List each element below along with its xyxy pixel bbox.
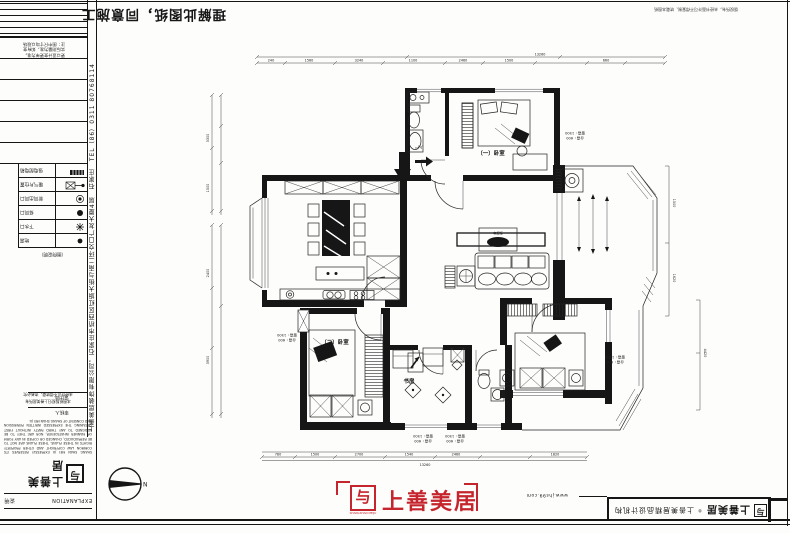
legend-label: 地漏: [20, 237, 29, 243]
window-annotation: 台高：600 窗高：1500: [412, 434, 433, 444]
master-furniture: [500, 333, 585, 390]
brand-glyph-icon: 与: [350, 485, 376, 511]
svg-text:台高：600: 台高：600: [413, 439, 431, 444]
brand-glyph-icon: 与: [754, 504, 767, 517]
rev-line: [0, 9, 88, 10]
drawing-sheet: 理解此图纸，同意施工 版权所有，未经书面许可不得复制、转载本图纸 更以设计变更单…: [0, 0, 790, 533]
dim: 2700: [355, 453, 364, 457]
expl-line-top: [4, 493, 92, 494]
rev-line: [0, 3, 88, 4]
legend-label: 新风出风口: [20, 195, 43, 201]
kitchen-furniture: [280, 289, 400, 300]
dim: 780: [275, 453, 281, 457]
svg-text:台高：600: 台高：600: [277, 338, 295, 343]
dim: 1500: [206, 184, 210, 193]
legend-label: 暖气片位置: [20, 181, 43, 187]
frame-right-line: [787, 0, 788, 526]
brand-glyph-icon: 与: [66, 465, 84, 484]
entry-label: 入户: [415, 145, 423, 151]
website-rule: [579, 496, 607, 497]
brand-name: 上善美居: [706, 503, 750, 518]
sign-line: [28, 407, 88, 408]
svg-text:窗高：1500: 窗高：1500: [564, 131, 585, 136]
dim: 3240: [355, 58, 364, 62]
rev-line: [0, 27, 88, 28]
titleblock-note: 更以设计变更单为准。 实际测量为准，如有变 注：图中尺寸均以现场: [2, 41, 86, 58]
room-label-bedroom1: （一）卧室: [477, 149, 505, 157]
window-annotation: 台高：600 窗高：1500: [276, 333, 297, 343]
notice-line: 本图纸版权归上善美居所有: [2, 398, 94, 404]
brand-right-logo: 与 上善美居 ® 上善美居精品设计机构: [614, 503, 767, 518]
explanation-row: EXPLANATION 说明: [4, 495, 92, 506]
frame-top-line: [0, 1, 790, 2]
frame-corner-bar-h: [768, 498, 788, 501]
dim: 660: [603, 58, 609, 62]
study-furniture: [393, 348, 462, 403]
dim: 1620: [672, 274, 676, 283]
room-label-bedroom2: （二）卧室: [321, 338, 349, 346]
legend-label: 排风口: [20, 209, 34, 215]
svg-text:台高：600: 台高：600: [445, 439, 463, 444]
note-line: 注：图中尺寸均以现场: [2, 41, 86, 47]
brand-tagline: 上善美居精品设计机构: [614, 505, 694, 515]
dim: 3900: [206, 356, 210, 365]
svg-text:台高：600: 台高：600: [565, 136, 583, 141]
legend-label: 强电配电箱: [20, 167, 43, 173]
legend-caption: （图例说明）: [18, 251, 87, 257]
svg-text:窗高：1500: 窗高：1500: [444, 434, 465, 439]
north-label: N: [143, 482, 148, 489]
dim: 1500: [505, 58, 514, 62]
window-annotation: 台高：600 窗高：1500: [564, 131, 585, 141]
legend-label: 下水口: [20, 223, 34, 229]
brand-name: 上善美居: [18, 458, 63, 490]
tb-line: [0, 79, 87, 80]
north-arrow: N: [100, 462, 154, 508]
dim: 1500: [311, 453, 320, 457]
company-address-vertical: 上善美居装饰有限公司，石家庄市桥西区红旗大街与南二环交口广友大厦4层 石家庄 T…: [88, 56, 97, 432]
registered-mark: ®: [698, 508, 702, 513]
svg-text:窗高：1500: 窗高：1500: [604, 355, 625, 360]
brand-bracket: [336, 481, 350, 495]
brand-center-logo: 与 SHANGSHAN MEIJU 上善美居: [336, 481, 478, 519]
dim: 2400: [206, 269, 210, 278]
dim: 1560: [305, 58, 314, 62]
room-label-study: 书房: [403, 377, 415, 385]
dim: 1100: [409, 58, 418, 62]
brand-sub: SHANGSHAN MEIJU: [346, 511, 380, 515]
dim-bottom-total: 13260: [420, 463, 431, 467]
rev-line: [0, 33, 88, 34]
living-furniture: [457, 228, 549, 289]
note-line: 实际测量为准，如有变: [2, 47, 86, 53]
rev-line: [0, 21, 88, 22]
approval-title: 理解此图纸，同意施工: [96, 6, 226, 26]
svg-text:台高：600: 台高：600: [605, 360, 623, 365]
dim: 1820: [551, 453, 560, 457]
walls: [262, 88, 612, 430]
legend-row-floor-drain: 地漏: [18, 233, 87, 247]
footer-logo: 与 上善美居: [18, 458, 84, 490]
dining-furniture: [308, 200, 365, 280]
svg-text:窗高：1500: 窗高：1500: [412, 434, 433, 439]
dim: 2460: [452, 453, 461, 457]
copyright-text: SHANG SHAN MEI JU EXPRESSLY RESERVES ITS…: [4, 410, 92, 454]
dim: 240: [268, 58, 274, 62]
notice-line: 未经许可不得转载，违者必究: [2, 391, 94, 397]
dim: 1500: [672, 199, 676, 208]
dim: 1540: [405, 453, 414, 457]
floor-drain-icon: [75, 231, 85, 250]
top-right-note: 版权所有，未经书面许可不得复制、转载本图纸: [612, 6, 780, 12]
dim: 2460: [459, 58, 468, 62]
window-annotation: 台高：600 窗高：1500: [444, 434, 465, 444]
dim: 3300: [206, 134, 210, 143]
tb-line: [0, 100, 87, 101]
explanation-cn: 说明: [4, 497, 15, 504]
website-url: www.jhs99.com: [514, 492, 580, 497]
expl-line-bottom: [4, 508, 92, 509]
rev-line: [0, 15, 88, 16]
dim: 4420: [703, 349, 707, 358]
brand-right-box: 与 上善美居 ® 上善美居精品设计机构: [607, 497, 771, 521]
brand-name: 上善美居: [382, 484, 478, 516]
rev-table-bottom: [0, 36, 88, 38]
frame-bottom-line-2: [0, 524, 790, 525]
svg-text:窗高：1500: 窗高：1500: [276, 333, 297, 338]
tb-line: [0, 121, 87, 122]
floor-plan: 13260 240 1560 3240 1100 2460 1500 660 7…: [195, 48, 715, 478]
dim-top-total: 13260: [535, 53, 546, 57]
explanation-en: EXPLANATION: [52, 498, 92, 504]
tb-line: [0, 142, 87, 143]
tb-line: [0, 58, 87, 59]
tv-cabinet-label: 电视柜: [493, 231, 503, 236]
